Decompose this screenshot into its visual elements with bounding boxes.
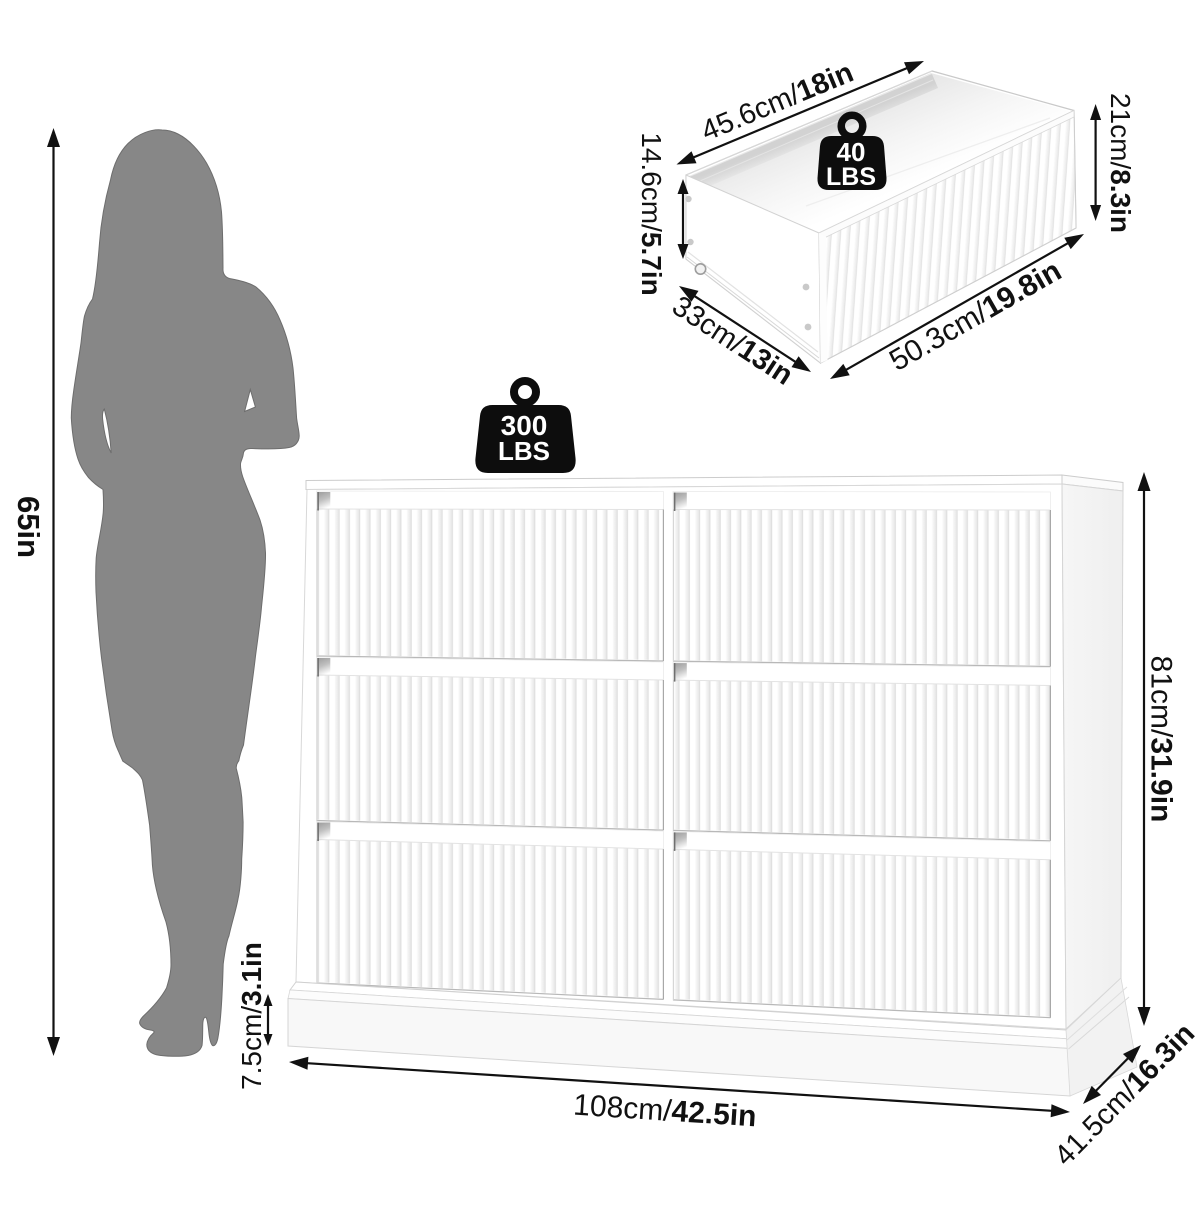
svg-text:LBS: LBS [826, 163, 876, 191]
svg-text:LBS: LBS [498, 436, 550, 466]
svg-text:14.6cm/5.7in: 14.6cm/5.7in [636, 132, 667, 295]
svg-text:21cm/8.3in: 21cm/8.3in [1105, 93, 1136, 233]
svg-text:81cm/31.9in: 81cm/31.9in [1145, 656, 1178, 823]
svg-text:65in: 65in [11, 496, 46, 558]
svg-text:7.5cm/3.1in: 7.5cm/3.1in [236, 942, 267, 1090]
